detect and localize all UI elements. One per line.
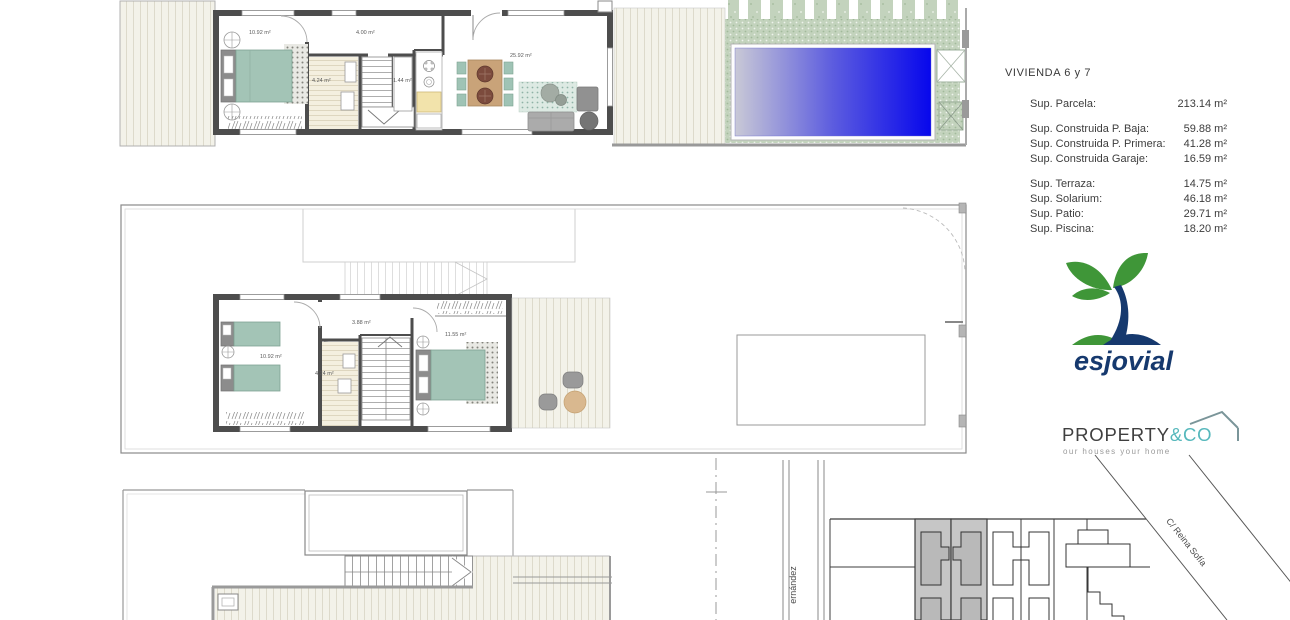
- living-sofa: [519, 82, 598, 131]
- surface-row: Sup. Construida P. Baja: 59.88 m²: [1005, 122, 1227, 137]
- surface-row: Sup. Construida P. Primera: 41.28 m²: [1005, 137, 1227, 152]
- street-left-label: ernández: [788, 566, 798, 604]
- surface-row: Sup. Solarium: 46.18 m²: [1005, 192, 1227, 207]
- dining-table: [457, 60, 513, 106]
- first-hall-label: 3.88 m²: [352, 320, 371, 326]
- master-bedroom-label: 11.55 m²: [445, 332, 466, 338]
- surface-row: Sup. Parcela: 213.14 m²: [1005, 97, 1227, 112]
- solarium-plan: [123, 490, 612, 620]
- palm-tree-icon: [1066, 253, 1161, 345]
- patio: [737, 203, 966, 427]
- first-terrace: [512, 298, 610, 428]
- site-plan: ernández: [706, 455, 1290, 620]
- ground-bathroom-label: 4.24 m²: [312, 78, 331, 84]
- surface-row: Sup. Patio: 29.71 m²: [1005, 207, 1227, 222]
- property-wordmark: PROPERTY&CO: [1062, 424, 1212, 445]
- surface-row: Sup. Terraza: 14.75 m²: [1005, 177, 1227, 192]
- property-tagline: our houses your home: [1063, 447, 1171, 456]
- surface-row: Sup. Piscina: 18.20 m²: [1005, 222, 1227, 237]
- ground-floor-plan: 10.92 m² 4.00 m² 4.24 m² 1.44 m² 25.92 m…: [120, 0, 969, 146]
- ground-bedroom-label: 10.92 m²: [249, 30, 271, 36]
- plan-sheet: 10.92 m² 4.00 m² 4.24 m² 1.44 m² 25.92 m…: [0, 0, 1290, 620]
- ground-kitchen: [416, 52, 442, 130]
- pool-garden: [725, 0, 965, 143]
- esjovial-logo: esjovial: [1066, 253, 1174, 376]
- street-right-label: C/ Reina Sofía: [1164, 516, 1208, 568]
- twin-bedroom-label: 10.92 m²: [260, 354, 282, 360]
- first-bathroom: [322, 342, 358, 426]
- ground-living-label: 25.92 m²: [510, 53, 532, 59]
- property-wordmark-accent: &CO: [1170, 424, 1213, 445]
- info-panel: VIVIENDA 6 y 7 Sup. Parcela: 213.14 m² S…: [1005, 66, 1227, 237]
- ground-hall-label: 4.00 m²: [356, 30, 375, 36]
- dwelling-title: VIVIENDA 6 y 7: [1005, 66, 1227, 81]
- solarium-stairs: [345, 556, 473, 588]
- property-co-logo: PROPERTY&CO our houses your home: [1062, 412, 1238, 456]
- ground-closet-label: 1.44 m²: [393, 78, 412, 84]
- first-stairs: [362, 337, 410, 420]
- first-bathroom-label: 4.24 m²: [315, 371, 334, 377]
- swimming-pool: [735, 48, 931, 136]
- first-floor-plan: 10.92 m² 3.88 m² 4.24 m² 11.55 m²: [121, 203, 966, 453]
- esjovial-wordmark: esjovial: [1074, 346, 1174, 376]
- surface-row: Sup. Construida Garaje: 16.59 m²: [1005, 152, 1227, 167]
- ground-bathroom: [309, 57, 358, 129]
